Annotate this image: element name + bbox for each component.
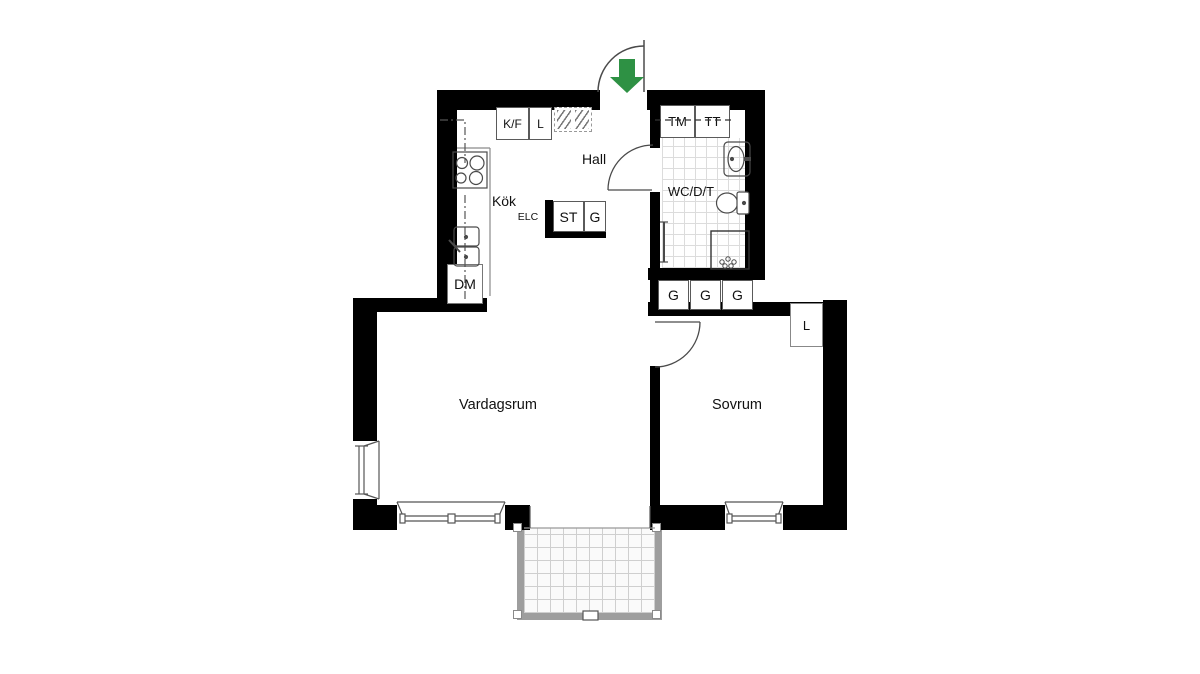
wardrobe-label: G — [700, 287, 711, 303]
wardrobe-label: G — [668, 287, 679, 303]
tumble-dryer-box: TT — [695, 105, 730, 138]
bedroom-closet-box: L — [790, 303, 823, 347]
washing-machine-box: TM — [660, 105, 695, 138]
wall-bathroom-bottom — [648, 268, 765, 280]
hall-closet-wall-bottom — [545, 232, 606, 238]
entrance-door — [598, 40, 644, 92]
bathroom-tile-floor — [662, 138, 748, 268]
balcony-rail-right — [655, 528, 662, 620]
wardrobe-box: G — [722, 280, 753, 310]
living-room-window — [397, 502, 505, 523]
bedroom-window — [725, 502, 783, 523]
kitchen-closet-label: L — [537, 117, 544, 131]
wall-bottom-3 — [650, 505, 725, 530]
balcony-floor — [524, 528, 655, 613]
hall-closet-g: G — [584, 201, 606, 232]
hall-closet-g-label: G — [590, 209, 601, 225]
room-label-bathroom: WC/D/T — [659, 184, 723, 199]
kitchen-closet-cabinet: L — [529, 107, 552, 140]
hall-closet-st: ST — [553, 201, 584, 232]
wall-living-bedroom — [650, 366, 660, 530]
washing-machine-label: TM — [668, 114, 687, 129]
room-label-bedroom: Sovrum — [682, 397, 792, 413]
fridge-freezer-cabinet: K/F — [496, 107, 529, 140]
label-electrical: ELC — [508, 211, 548, 223]
entrance-arrow-icon — [610, 59, 644, 93]
wall-hall-bath-lower — [650, 192, 660, 280]
wall-bathroom-right — [745, 90, 765, 280]
balcony-rail-left — [517, 528, 524, 620]
wardrobe-label: G — [732, 287, 743, 303]
dishwasher-label: DM — [454, 276, 476, 292]
wall-hall-bath-upper — [650, 110, 660, 148]
tumble-dryer-label: TT — [705, 114, 721, 129]
balcony-post — [652, 610, 661, 619]
balcony-post — [652, 523, 661, 532]
room-label-hall: Hall — [566, 151, 622, 167]
room-label-living-room: Vardagsrum — [438, 397, 558, 413]
bedroom-closet-label: L — [803, 318, 810, 333]
bedroom-door — [655, 322, 700, 367]
dishwasher-box: DM — [447, 264, 483, 304]
wardrobe-box: G — [690, 280, 721, 310]
balcony-post — [513, 523, 522, 532]
balcony-rail-bottom — [517, 613, 662, 620]
wardrobe-box: G — [658, 280, 689, 310]
wall-bottom-1 — [353, 505, 397, 530]
balcony-post — [513, 610, 522, 619]
living-room-side-window — [351, 441, 380, 499]
coat-rack-icon — [554, 107, 592, 132]
fridge-freezer-label: K/F — [503, 117, 522, 131]
stove-icon — [453, 152, 487, 188]
hall-closet-st-label: ST — [560, 209, 578, 225]
wall-living-left-upper — [353, 298, 377, 441]
wall-bedroom-right — [823, 300, 847, 530]
room-label-kitchen: Kök — [482, 193, 526, 209]
floor-plan: K/F L TM TT ST G DM G G G L — [0, 0, 1200, 674]
